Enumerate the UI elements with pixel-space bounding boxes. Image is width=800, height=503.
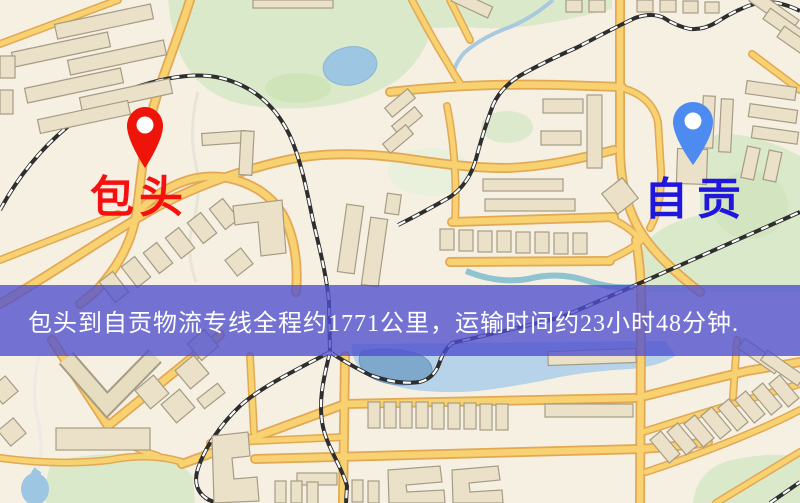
destination-pin[interactable] xyxy=(668,98,718,168)
map-pin-icon xyxy=(127,107,163,168)
destination-city-label: 自贡 xyxy=(644,178,750,222)
map-screenshot: 包头到自贡物流专线全程约1771公里，运输时间约23小时48分钟. 包头 自贡 xyxy=(0,0,800,503)
map-canvas xyxy=(0,0,800,503)
route-info-text: 包头到自贡物流专线全程约1771公里，运输时间约23小时48分钟. xyxy=(0,303,739,338)
route-info-banner: 包头到自贡物流专线全程约1771公里，运输时间约23小时48分钟. xyxy=(0,285,800,356)
origin-pin[interactable] xyxy=(122,103,168,171)
map-pin-icon xyxy=(673,102,713,165)
origin-city-label: 包头 xyxy=(90,176,188,220)
